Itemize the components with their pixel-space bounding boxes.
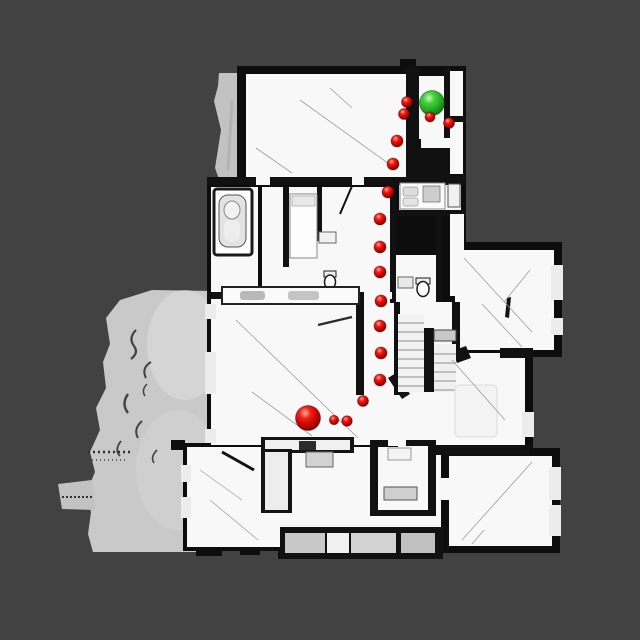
goal-marker [420, 91, 445, 116]
start-marker [296, 406, 321, 431]
floorplan-topdown-render[interactable] [0, 0, 640, 640]
scene-viewport[interactable] [0, 0, 640, 640]
